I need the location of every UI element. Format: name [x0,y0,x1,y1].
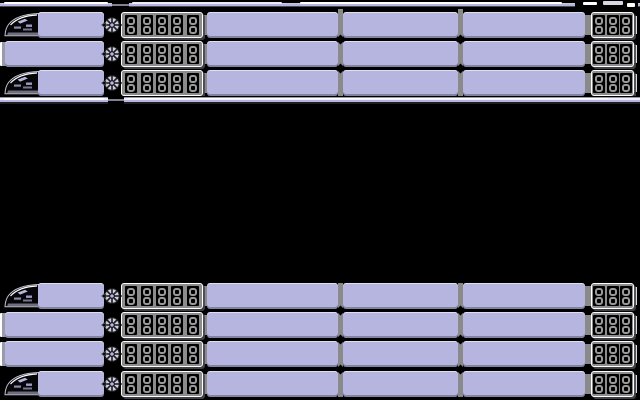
digit-ring [158,46,166,54]
digit-ring [622,297,630,305]
overhead-rail [0,1,640,9]
digit-ring [595,75,603,83]
display-digit [607,374,619,394]
display-digit [607,44,619,64]
digit-ring [595,326,603,334]
display-digit [156,73,168,93]
train-row[interactable] [0,341,640,367]
digit-ring [609,297,617,305]
digit-ring [127,55,135,63]
display-digit [125,286,137,306]
display-digit [607,73,619,93]
display-digit [607,15,619,35]
display-digit [593,315,605,335]
display-digit [593,344,605,364]
display-digit [620,73,632,93]
digit-ring [127,317,135,325]
right-end-cap [634,287,637,305]
digit-ring [622,376,630,384]
digit-ring [143,288,151,296]
right-end-cap [634,375,637,393]
rail-highlight [132,2,282,4]
digit-ring [622,84,630,92]
digit-ring [609,55,617,63]
display-digit [620,344,632,364]
display-digit [187,44,199,64]
display-digit [607,315,619,335]
digit-ring [609,84,617,92]
display-digit [620,315,632,335]
digit-ring [158,346,166,354]
digit-ring [595,288,603,296]
digit-ring [173,55,181,63]
car-segment [463,312,585,338]
lower-rail [0,96,640,104]
display-digit [593,73,605,93]
digit-ring [609,376,617,384]
display-digit [171,73,183,93]
train-row[interactable] [0,371,640,397]
digit-ring [595,84,603,92]
display-digit [593,15,605,35]
digit-ring [143,17,151,25]
digit-ring [189,297,197,305]
digit-ring [595,46,603,54]
window-display-left [121,12,203,38]
digit-ring [173,317,181,325]
digit-ring [173,84,181,92]
digit-ring [609,385,617,393]
digit-ring [189,55,197,63]
display-digit [141,44,153,64]
train-row[interactable] [0,283,640,309]
digit-ring [158,288,166,296]
digit-ring [143,84,151,92]
display-digit [156,15,168,35]
digit-ring [622,288,630,296]
digit-ring [189,385,197,393]
car-segment [343,371,458,397]
digit-ring [595,376,603,384]
display-digit [141,315,153,335]
digit-ring [189,317,197,325]
support-pillar [338,9,343,97]
display-digit [141,73,153,93]
display-digit [620,44,632,64]
digit-ring [622,326,630,334]
digit-ring [189,326,197,334]
display-digit [125,73,137,93]
display-digit [156,344,168,364]
digit-ring [609,355,617,363]
car-segment [463,283,585,309]
window-display-left [121,371,203,397]
support-pillar [458,9,463,97]
digit-ring [595,55,603,63]
digit-ring [622,46,630,54]
coupling-fan-icon [101,41,123,67]
digit-ring [143,317,151,325]
digit-ring [622,317,630,325]
display-digit [125,44,137,64]
window-display-right [591,41,634,67]
digit-ring [595,297,603,305]
digit-ring [173,288,181,296]
display-digit [156,315,168,335]
lower-train-group [0,0,640,400]
digit-ring [189,75,197,83]
digit-ring [127,326,135,334]
display-digit [156,374,168,394]
display-digit [125,374,137,394]
window-display-left [121,341,203,367]
digit-ring [143,55,151,63]
digit-ring [622,355,630,363]
display-digit [156,286,168,306]
display-digit [171,44,183,64]
coupling-fan-icon [101,371,123,397]
rail-highlight [4,2,108,4]
digit-ring [189,288,197,296]
display-digit [187,286,199,306]
window-display-right [591,283,634,309]
display-digit [141,286,153,306]
game-screen [0,0,640,400]
train-row[interactable] [0,312,640,338]
digit-ring [127,75,135,83]
car-segment [343,283,458,309]
display-digit [141,374,153,394]
digit-ring [143,376,151,384]
digit-ring [158,385,166,393]
display-digit [187,315,199,335]
digit-ring [158,26,166,34]
display-digit [187,374,199,394]
digit-ring [127,376,135,384]
digit-ring [173,346,181,354]
digit-ring [622,17,630,25]
digit-ring [189,376,197,384]
rail-latch [575,1,638,9]
digit-ring [143,26,151,34]
display-digit [171,286,183,306]
digit-ring [609,17,617,25]
rail-highlight [128,98,608,99]
coupling-fan-icon [101,12,123,38]
digit-ring [127,288,135,296]
digit-ring [173,26,181,34]
display-digit [620,374,632,394]
display-digit [593,374,605,394]
digit-ring [595,17,603,25]
digit-ring [595,346,603,354]
coupling-fan-icon [101,283,123,309]
window-display-left [121,41,203,67]
display-digit [593,44,605,64]
digit-ring [622,55,630,63]
digit-ring [143,75,151,83]
rail-bracket [112,1,129,9]
front-body [5,341,104,367]
digit-ring [173,297,181,305]
display-digit [171,374,183,394]
digit-ring [622,385,630,393]
digit-ring [189,46,197,54]
display-digit [141,15,153,35]
window-display-left [121,70,203,96]
display-digit [607,286,619,306]
digit-ring [609,317,617,325]
digit-ring [595,355,603,363]
digit-ring [173,46,181,54]
digit-ring [158,355,166,363]
digit-ring [143,46,151,54]
train-nose [3,283,39,309]
digit-ring [173,376,181,384]
digit-ring [173,326,181,334]
display-digit [607,344,619,364]
display-digit [141,344,153,364]
digit-ring [173,355,181,363]
digit-ring [609,326,617,334]
digit-ring [127,385,135,393]
window-display-left [121,312,203,338]
window-display-right [591,70,634,96]
digit-ring [158,75,166,83]
display-digit [187,344,199,364]
front-body [38,371,104,397]
digit-ring [609,288,617,296]
car-segment [463,371,585,397]
digit-ring [609,75,617,83]
digit-ring [609,46,617,54]
display-digit [593,286,605,306]
display-digit [125,15,137,35]
digit-ring [127,355,135,363]
digit-ring [127,46,135,54]
digit-ring [127,26,135,34]
digit-ring [158,326,166,334]
car-segment [207,341,338,367]
window-display-right [591,312,634,338]
digit-ring [143,346,151,354]
digit-ring [143,385,151,393]
window-display-right [591,341,634,367]
window-display-right [591,12,634,38]
digit-ring [609,346,617,354]
rail-highlight [300,2,562,4]
coupling-fan-icon [101,312,123,338]
digit-ring [158,84,166,92]
coupling-fan-icon [101,70,123,96]
front-body [5,312,104,338]
display-digit [156,44,168,64]
digit-ring [189,84,197,92]
digit-ring [173,385,181,393]
digit-ring [189,346,197,354]
digit-ring [143,326,151,334]
digit-ring [595,317,603,325]
display-digit [171,344,183,364]
digit-ring [158,55,166,63]
digit-ring [622,346,630,354]
car-segment [207,283,338,309]
digit-ring [173,17,181,25]
digit-ring [127,17,135,25]
digit-ring [158,297,166,305]
display-digit [620,15,632,35]
car-segment [343,341,458,367]
digit-ring [143,297,151,305]
digit-ring [143,355,151,363]
display-digit [171,315,183,335]
display-digit [171,15,183,35]
digit-ring [127,84,135,92]
digit-ring [158,17,166,25]
right-end-cap [634,345,637,363]
car-segment [463,341,585,367]
digit-ring [189,17,197,25]
display-digit [620,286,632,306]
rail-highlight [4,98,104,100]
digit-ring [622,26,630,34]
digit-ring [622,75,630,83]
display-digit [187,15,199,35]
rail-bracket [108,96,124,104]
car-segment [207,312,338,338]
digit-ring [189,26,197,34]
display-digit [125,315,137,335]
digit-ring [158,376,166,384]
train-nose [3,371,39,397]
digit-ring [595,26,603,34]
car-segment [207,371,338,397]
digit-ring [189,355,197,363]
display-digit [125,344,137,364]
coupling-fan-icon [101,341,123,367]
digit-ring [609,26,617,34]
right-end-cap [634,316,637,334]
digit-ring [173,75,181,83]
digit-ring [127,346,135,354]
car-segment [343,312,458,338]
window-display-left [121,283,203,309]
display-digit [187,73,199,93]
digit-ring [595,385,603,393]
front-body [38,283,104,309]
digit-ring [158,317,166,325]
digit-ring [127,297,135,305]
window-display-right [591,371,634,397]
